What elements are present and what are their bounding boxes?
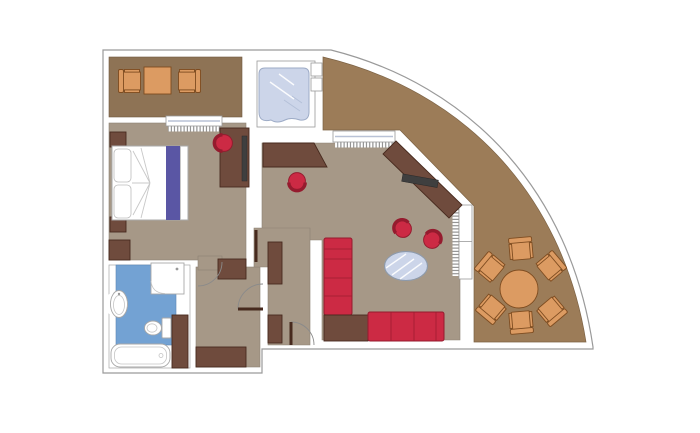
- sliding-door-hatch: [453, 208, 459, 276]
- bedroom-window-hatch: [168, 126, 220, 132]
- bedroom-window: [166, 116, 222, 132]
- niche-column-top: [311, 63, 322, 76]
- bed-pillow-bottom: [114, 185, 131, 218]
- bathroom-door-leaf: [238, 308, 263, 311]
- terrace-armchair-left: [119, 70, 141, 93]
- living-window-hatch: [335, 142, 393, 148]
- bathroom-cabinet: [172, 315, 188, 368]
- dining-table: [500, 270, 538, 308]
- living-room-window: [333, 131, 395, 148]
- dresser: [109, 240, 130, 260]
- washbasin: [111, 291, 128, 318]
- dining-chair: [508, 237, 533, 261]
- sliding-door-frame: [459, 205, 472, 279]
- whirlpool-glass-tub: [259, 68, 309, 122]
- nightstand-top: [110, 132, 126, 147]
- dining-chair: [509, 311, 534, 335]
- balcony-sliding-door: [453, 205, 473, 279]
- desk-chair: [214, 135, 232, 152]
- bedroom-tv: [242, 136, 247, 181]
- sofa-vertical: [324, 238, 352, 315]
- double-bed: [112, 146, 188, 220]
- bed-runner: [166, 146, 180, 220]
- whirlpool-niche: [257, 61, 322, 127]
- sofa-horizontal: [368, 312, 444, 341]
- floorplan-canvas: [0, 0, 700, 433]
- terrace-furniture: [119, 67, 201, 94]
- console-stool: [289, 173, 306, 191]
- entry-door-leaf: [290, 322, 293, 345]
- floorplan-svg: [0, 0, 700, 433]
- bed-pillow-top: [114, 149, 131, 182]
- terrace-side-table: [144, 67, 171, 94]
- bathtub: [111, 344, 170, 367]
- closet-door-leaf: [255, 230, 258, 262]
- terrace-armchair-right: [179, 70, 201, 93]
- shower: [151, 263, 184, 294]
- coffee-table: [385, 252, 428, 281]
- hall-cabinet: [268, 315, 282, 343]
- niche-column-bottom: [311, 78, 322, 91]
- hall-bottom-closet: [196, 347, 246, 367]
- hall-wardrobe: [268, 242, 282, 284]
- sofa-corner-table: [324, 315, 368, 341]
